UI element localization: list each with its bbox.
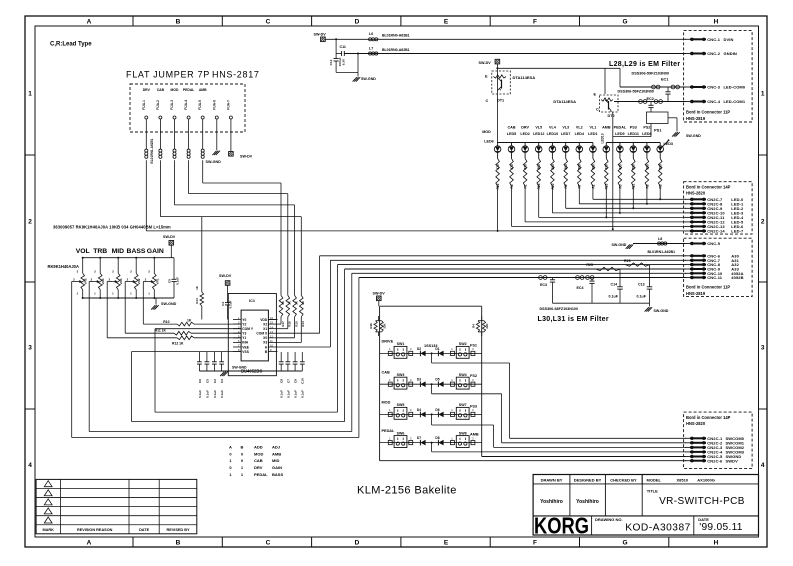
svg-text:C5: C5: [205, 379, 209, 383]
svg-text:D7: D7: [417, 436, 421, 440]
svg-text:DRAWN BY: DRAWN BY: [541, 478, 563, 483]
svg-text:F/JA-6: F/JA-6: [212, 100, 216, 110]
svg-text:IC1: IC1: [249, 299, 255, 303]
svg-text:VR5: VR5: [84, 278, 88, 284]
svg-text:RK9K1H40AJ0A: RK9K1H40AJ0A: [48, 264, 79, 269]
svg-text:MOD: MOD: [171, 88, 179, 92]
svg-text:0.1uF: 0.1uF: [286, 390, 290, 398]
svg-text:0.1uF: 0.1uF: [280, 390, 284, 398]
svg-text:SW-GND: SW-GND: [654, 309, 669, 313]
svg-text:A: A: [229, 444, 232, 449]
svg-text:DATE: DATE: [139, 528, 150, 532]
svg-text:LED4: LED4: [575, 132, 585, 136]
svg-text:R7: R7: [578, 184, 582, 188]
svg-text:0.1uF: 0.1uF: [609, 295, 619, 299]
svg-text:PEDAL: PEDAL: [614, 125, 627, 129]
svg-text:C13: C13: [638, 283, 645, 287]
svg-text:C10: C10: [301, 378, 305, 384]
svg-text:MODEL: MODEL: [647, 478, 662, 483]
svg-text:H: H: [714, 540, 719, 547]
svg-text:X3: X3: [263, 341, 267, 345]
svg-text:L30,L31 is EM Filter: L30,L31 is EM Filter: [538, 316, 609, 323]
svg-text:SW-DV: SW-DV: [163, 235, 176, 239]
svg-text:MOD: MOD: [382, 401, 391, 405]
svg-text:C5: C5: [168, 279, 172, 283]
svg-text:BASS: BASS: [272, 472, 283, 477]
svg-text:R26: R26: [624, 259, 631, 263]
svg-text:C: C: [486, 99, 489, 103]
svg-text:F/JA-5: F/JA-5: [198, 100, 202, 110]
svg-text:'99.05.11: '99.05.11: [699, 522, 743, 533]
svg-text:DVIN: DVIN: [724, 37, 734, 42]
svg-text:C: C: [596, 108, 599, 112]
svg-text:SW1: SW1: [397, 342, 405, 346]
svg-text:MID: MID: [272, 458, 279, 463]
svg-text:D1: D1: [435, 347, 439, 351]
svg-text:B: B: [176, 19, 181, 26]
svg-text:R11 1K: R11 1K: [155, 329, 167, 333]
svg-text:B: B: [176, 540, 181, 547]
svg-text:G: G: [622, 19, 627, 26]
svg-text:FS1: FS1: [470, 343, 477, 347]
svg-text:470: 470: [605, 164, 609, 170]
svg-text:PEDAL: PEDAL: [183, 88, 195, 92]
svg-text:C11: C11: [340, 45, 346, 49]
svg-text:R6: R6: [510, 184, 514, 188]
svg-text:1: 1: [28, 91, 32, 98]
svg-text:D: D: [355, 540, 360, 547]
svg-text:SW2: SW2: [459, 342, 467, 346]
svg-text:VDD: VDD: [260, 318, 268, 322]
svg-text:PS3: PS3: [630, 125, 637, 129]
svg-text:560: 560: [659, 164, 663, 170]
svg-text:CNC-11: CNC-11: [707, 275, 723, 280]
svg-text:560: 560: [591, 164, 595, 170]
svg-text:EC1: EC1: [661, 78, 668, 82]
svg-text:AX1000G: AX1000G: [697, 478, 715, 483]
svg-text:0.1uF: 0.1uF: [637, 295, 647, 299]
svg-text:SW7: SW7: [459, 403, 467, 407]
svg-text:DSS306-68FZ103N100: DSS306-68FZ103N100: [540, 307, 579, 311]
svg-text:LED5: LED5: [507, 132, 516, 136]
svg-text:D: D: [355, 19, 360, 26]
svg-text:AMB: AMB: [602, 125, 611, 129]
svg-text:R13: R13: [195, 298, 199, 304]
svg-text:CNC-2: CNC-2: [707, 51, 720, 56]
svg-text:DRV: DRV: [521, 125, 529, 129]
svg-text:LED-COM1: LED-COM1: [724, 99, 746, 104]
svg-text:LED9: LED9: [615, 132, 624, 136]
svg-text:DRIVE: DRIVE: [382, 340, 394, 344]
svg-text:BASS: BASS: [127, 248, 146, 255]
svg-text:FS3: FS3: [470, 404, 477, 408]
svg-text:L6: L6: [369, 32, 373, 36]
svg-text:VOL: VOL: [76, 248, 90, 255]
svg-text:F/JA-7: F/JA-7: [226, 100, 230, 110]
svg-text:0.1uF: 0.1uF: [229, 300, 233, 308]
svg-text:AMB: AMB: [470, 433, 479, 437]
svg-text:REVISED BY: REVISED BY: [167, 528, 190, 532]
svg-text:VR1: VR1: [155, 278, 159, 284]
svg-text:MID: MID: [112, 248, 125, 255]
svg-text:VR-SWITCH-PCB: VR-SWITCH-PCB: [659, 496, 745, 507]
svg-text:HNS-2817: HNS-2817: [212, 70, 260, 80]
svg-text:DRAWING NO.: DRAWING NO.: [595, 517, 623, 522]
svg-text:LED-7: LED-7: [731, 229, 744, 234]
svg-text:FLAT JUMPER 7P: FLAT JUMPER 7P: [126, 70, 210, 80]
svg-text:X0: X0: [263, 336, 267, 340]
svg-text:C12: C12: [329, 59, 333, 65]
svg-text:PS2: PS2: [643, 125, 650, 129]
svg-text:0.1uF: 0.1uF: [301, 390, 305, 398]
svg-text:CAB: CAB: [382, 371, 390, 375]
svg-text:BL01RN1-A62B1: BL01RN1-A62B1: [648, 250, 676, 254]
svg-text:Y1: Y1: [242, 336, 246, 340]
svg-text:TRB: TRB: [93, 248, 107, 255]
svg-text:SW8: SW8: [459, 431, 467, 435]
svg-text:F: F: [533, 19, 537, 26]
svg-text:D4: D4: [417, 408, 421, 412]
svg-text:SW-DV: SW-DV: [219, 274, 232, 278]
svg-text:Yoshihiro: Yoshihiro: [576, 499, 599, 505]
svg-text:LED-COM0: LED-COM0: [724, 85, 746, 90]
svg-text:SW-GND: SW-GND: [232, 365, 247, 369]
svg-text:MARK: MARK: [43, 528, 55, 532]
svg-text:VR2: VR2: [137, 278, 141, 284]
svg-text:TITLE: TITLE: [647, 488, 658, 493]
svg-text:Y2: Y2: [242, 322, 246, 326]
svg-text:INH: INH: [242, 341, 248, 345]
svg-text:DRV: DRV: [143, 88, 151, 92]
svg-text:C,R:Lead Type: C,R:Lead Type: [50, 42, 92, 48]
svg-text:CHECKED BY: CHECKED BY: [610, 478, 637, 483]
svg-text:DRV: DRV: [254, 465, 263, 470]
svg-text:SW-DV: SW-DV: [479, 61, 492, 65]
svg-text:X1: X1: [263, 327, 267, 331]
svg-text:SW-GND: SW-GND: [612, 243, 627, 247]
svg-text:2: 2: [761, 219, 765, 226]
svg-text:L28,L29 is EM Filter: L28,L29 is EM Filter: [609, 61, 680, 68]
svg-text:VEE: VEE: [242, 345, 249, 349]
svg-text:D6: D6: [435, 408, 439, 412]
svg-text:F/JA-3: F/JA-3: [170, 100, 174, 110]
svg-text:BL01RN0-A62B1: BL01RN0-A62B1: [382, 48, 410, 52]
svg-text:VL2: VL2: [576, 125, 583, 129]
svg-text:D5: D5: [435, 378, 439, 382]
svg-text:X2: X2: [263, 322, 267, 326]
svg-text:R1: R1: [524, 184, 528, 188]
svg-text:R25: R25: [586, 263, 593, 267]
svg-text:MOD: MOD: [254, 451, 263, 456]
svg-text:SW6: SW6: [397, 431, 405, 435]
svg-text:GAIN: GAIN: [272, 465, 282, 470]
svg-text:VL1: VL1: [590, 125, 597, 129]
svg-text:R14: R14: [301, 321, 305, 327]
svg-text:560: 560: [632, 164, 636, 170]
svg-text:VL5: VL5: [535, 125, 542, 129]
svg-text:EC4: EC4: [577, 286, 584, 290]
svg-text:6.3V: 6.3V: [342, 58, 346, 65]
svg-text:SW-DV: SW-DV: [373, 292, 386, 296]
svg-text:DTA114ESA: DTA114ESA: [553, 99, 576, 104]
svg-text:CNC-4: CNC-4: [707, 99, 720, 104]
svg-text:SW-GND: SW-GND: [206, 160, 222, 164]
svg-text:F: F: [533, 540, 537, 547]
svg-text:X8510: X8510: [677, 478, 689, 483]
svg-text:LED6: LED6: [484, 139, 493, 143]
svg-text:DSS306-59FZ103N00: DSS306-59FZ103N00: [632, 71, 670, 75]
svg-text:CNC-5: CNC-5: [707, 241, 720, 246]
svg-text:560: 560: [551, 164, 555, 170]
svg-text:VR4: VR4: [101, 278, 105, 284]
svg-text:C8: C8: [280, 379, 284, 383]
svg-text:R21: R21: [632, 183, 636, 189]
svg-text:Bord in Connector 14P: Bord in Connector 14P: [686, 415, 731, 420]
svg-text:0.1uF: 0.1uF: [175, 277, 179, 285]
svg-text:470: 470: [618, 164, 622, 170]
svg-text:D2: D2: [417, 347, 421, 351]
svg-text:FS2: FS2: [470, 374, 477, 378]
svg-text:GAIN: GAIN: [147, 248, 164, 255]
svg-text:ADD: ADD: [254, 444, 263, 449]
svg-text:KOD-A30387: KOD-A30387: [625, 523, 691, 534]
svg-text:C: C: [266, 540, 271, 547]
svg-text:SWDV: SWDV: [726, 458, 739, 463]
svg-text:D3: D3: [417, 378, 421, 382]
svg-text:CNC-3: CNC-3: [707, 85, 720, 90]
svg-text:HNS-2819: HNS-2819: [686, 291, 706, 296]
svg-text:CAB: CAB: [157, 88, 165, 92]
svg-text:A: A: [87, 19, 92, 26]
svg-text:PEDAL: PEDAL: [382, 429, 396, 433]
svg-text:BL01RN1-A62B1: BL01RN1-A62B1: [150, 138, 154, 163]
svg-text:3: 3: [28, 345, 32, 352]
svg-text:F/JA-2: F/JA-2: [156, 100, 160, 110]
svg-text:SW-DV: SW-DV: [314, 32, 327, 36]
svg-text:CN2C-6: CN2C-6: [707, 458, 723, 463]
svg-text:560: 560: [564, 164, 568, 170]
svg-text:GNDIN: GNDIN: [724, 51, 737, 56]
svg-text:LED1: LED1: [588, 132, 597, 136]
svg-text:363009057 RK9K1H40AJ0A 10KB 03: 363009057 RK9K1H40AJ0A 10KB 034 GH0440BM…: [53, 225, 171, 230]
svg-text:LED8: LED8: [642, 132, 651, 136]
svg-text:4: 4: [761, 462, 765, 469]
svg-text:SW3: SW3: [397, 373, 405, 377]
svg-text:F/JA-4: F/JA-4: [184, 100, 188, 110]
svg-text:SW-GND: SW-GND: [686, 134, 701, 138]
svg-text:BL01RN0-A62B1: BL01RN0-A62B1: [382, 34, 410, 38]
svg-text:560: 560: [578, 164, 582, 170]
svg-text:E: E: [444, 540, 449, 547]
svg-text:Bord in Connector 14P: Bord in Connector 14P: [686, 184, 731, 189]
svg-text:22K: 22K: [485, 322, 489, 328]
svg-text:LED2: LED2: [520, 132, 529, 136]
svg-text:F/JA-1: F/JA-1: [142, 100, 146, 110]
svg-text:HNS-2819: HNS-2819: [686, 116, 706, 121]
svg-text:KORG: KORG: [534, 513, 589, 539]
svg-text:EC3: EC3: [540, 283, 547, 287]
svg-text:COM Y: COM Y: [242, 327, 254, 331]
svg-text:0.1uF: 0.1uF: [213, 390, 217, 398]
svg-text:PEDAL: PEDAL: [254, 472, 268, 477]
svg-text:LED10: LED10: [547, 132, 558, 136]
svg-text:3: 3: [761, 345, 765, 352]
svg-text:LED7: LED7: [561, 132, 570, 136]
svg-text:EC2: EC2: [647, 97, 654, 101]
svg-text:470: 470: [496, 164, 500, 170]
svg-text:2: 2: [28, 219, 32, 226]
svg-text:L8: L8: [658, 237, 662, 241]
svg-text:0.1uF: 0.1uF: [198, 390, 202, 398]
svg-text:E: E: [444, 19, 449, 26]
svg-text:C2: C2: [213, 379, 217, 383]
svg-text:LED12: LED12: [533, 132, 544, 136]
svg-text:L7: L7: [369, 47, 373, 51]
svg-text:AMB: AMB: [199, 88, 207, 92]
svg-text:REVISION REASON: REVISION REASON: [77, 528, 113, 532]
svg-text:HNS-2820: HNS-2820: [686, 421, 706, 426]
svg-text:VL3: VL3: [562, 125, 569, 129]
svg-text:COM X: COM X: [256, 332, 268, 336]
svg-text:H: H: [714, 19, 719, 26]
svg-text:Bord in Connector 11P: Bord in Connector 11P: [686, 110, 730, 115]
svg-text:DSS306-59FZ103N00: DSS306-59FZ103N00: [618, 90, 655, 94]
svg-text:C9: C9: [294, 379, 298, 383]
svg-text:LED13: LED13: [601, 133, 605, 143]
svg-text:VL4: VL4: [549, 125, 557, 129]
svg-text:HNS-2820: HNS-2820: [686, 191, 706, 196]
svg-text:560: 560: [537, 164, 541, 170]
svg-text:22K: 22K: [383, 322, 387, 328]
svg-text:C: C: [266, 19, 271, 26]
svg-text:VR3: VR3: [119, 278, 123, 284]
svg-text:SW4: SW4: [459, 373, 467, 377]
svg-text:560: 560: [645, 164, 649, 170]
svg-text:0.1uF: 0.1uF: [220, 390, 224, 398]
svg-text:PS1: PS1: [654, 128, 662, 133]
svg-text:Bord in Connector 11P: Bord in Connector 11P: [686, 284, 730, 289]
svg-text:MOD: MOD: [482, 130, 491, 134]
svg-text:C3: C3: [220, 379, 224, 383]
svg-text:470: 470: [524, 164, 528, 170]
svg-text:R10: R10: [163, 320, 169, 324]
svg-text:KLM-2156 Bakelite: KLM-2156 Bakelite: [357, 485, 457, 497]
svg-text:0.1uF: 0.1uF: [294, 390, 298, 398]
svg-text:DTA114ESA: DTA114ESA: [513, 75, 536, 80]
svg-text:SW-GND: SW-GND: [161, 302, 177, 306]
svg-text:R18: R18: [369, 323, 373, 329]
svg-text:LED11: LED11: [628, 132, 639, 136]
svg-text:4: 4: [28, 462, 32, 469]
svg-text:SW5: SW5: [397, 403, 405, 407]
svg-text:SW-DV: SW-DV: [240, 154, 253, 158]
svg-text:1: 1: [761, 91, 765, 98]
svg-text:1K: 1K: [187, 319, 192, 323]
svg-text:G: G: [622, 540, 627, 547]
svg-text:R23: R23: [605, 183, 609, 189]
svg-text:C6: C6: [198, 379, 202, 383]
svg-text:R4: R4: [471, 324, 475, 328]
svg-text:C7: C7: [286, 379, 290, 383]
svg-text:CN2C-14: CN2C-14: [707, 229, 725, 234]
svg-text:B: B: [241, 444, 244, 449]
svg-text:R12 1K: R12 1K: [172, 341, 184, 345]
svg-text:DT1: DT1: [497, 99, 504, 103]
svg-text:Yoshihiro: Yoshihiro: [540, 499, 563, 505]
svg-text:AMB: AMB: [272, 451, 281, 456]
svg-text:DT2: DT2: [608, 114, 615, 118]
svg-text:CNC-1: CNC-1: [707, 37, 720, 42]
svg-text:ADJ: ADJ: [272, 444, 280, 449]
svg-text:C14: C14: [611, 283, 618, 287]
svg-text:470: 470: [510, 164, 514, 170]
svg-text:A: A: [87, 540, 92, 547]
svg-text:4052B: 4052B: [731, 275, 743, 280]
svg-text:0.1uF: 0.1uF: [205, 390, 209, 398]
svg-text:C4: C4: [221, 302, 225, 306]
svg-text:CAB: CAB: [508, 125, 516, 129]
svg-text:Y0: Y0: [242, 318, 246, 322]
svg-text:SW-GND: SW-GND: [361, 77, 376, 81]
svg-text:Y3: Y3: [242, 332, 246, 336]
svg-text:CAB: CAB: [254, 458, 263, 463]
svg-text:DESIGNED BY: DESIGNED BY: [574, 478, 602, 483]
svg-text:R16: R16: [288, 321, 292, 327]
svg-text:VSS: VSS: [242, 350, 249, 354]
svg-text:D8: D8: [435, 436, 439, 440]
